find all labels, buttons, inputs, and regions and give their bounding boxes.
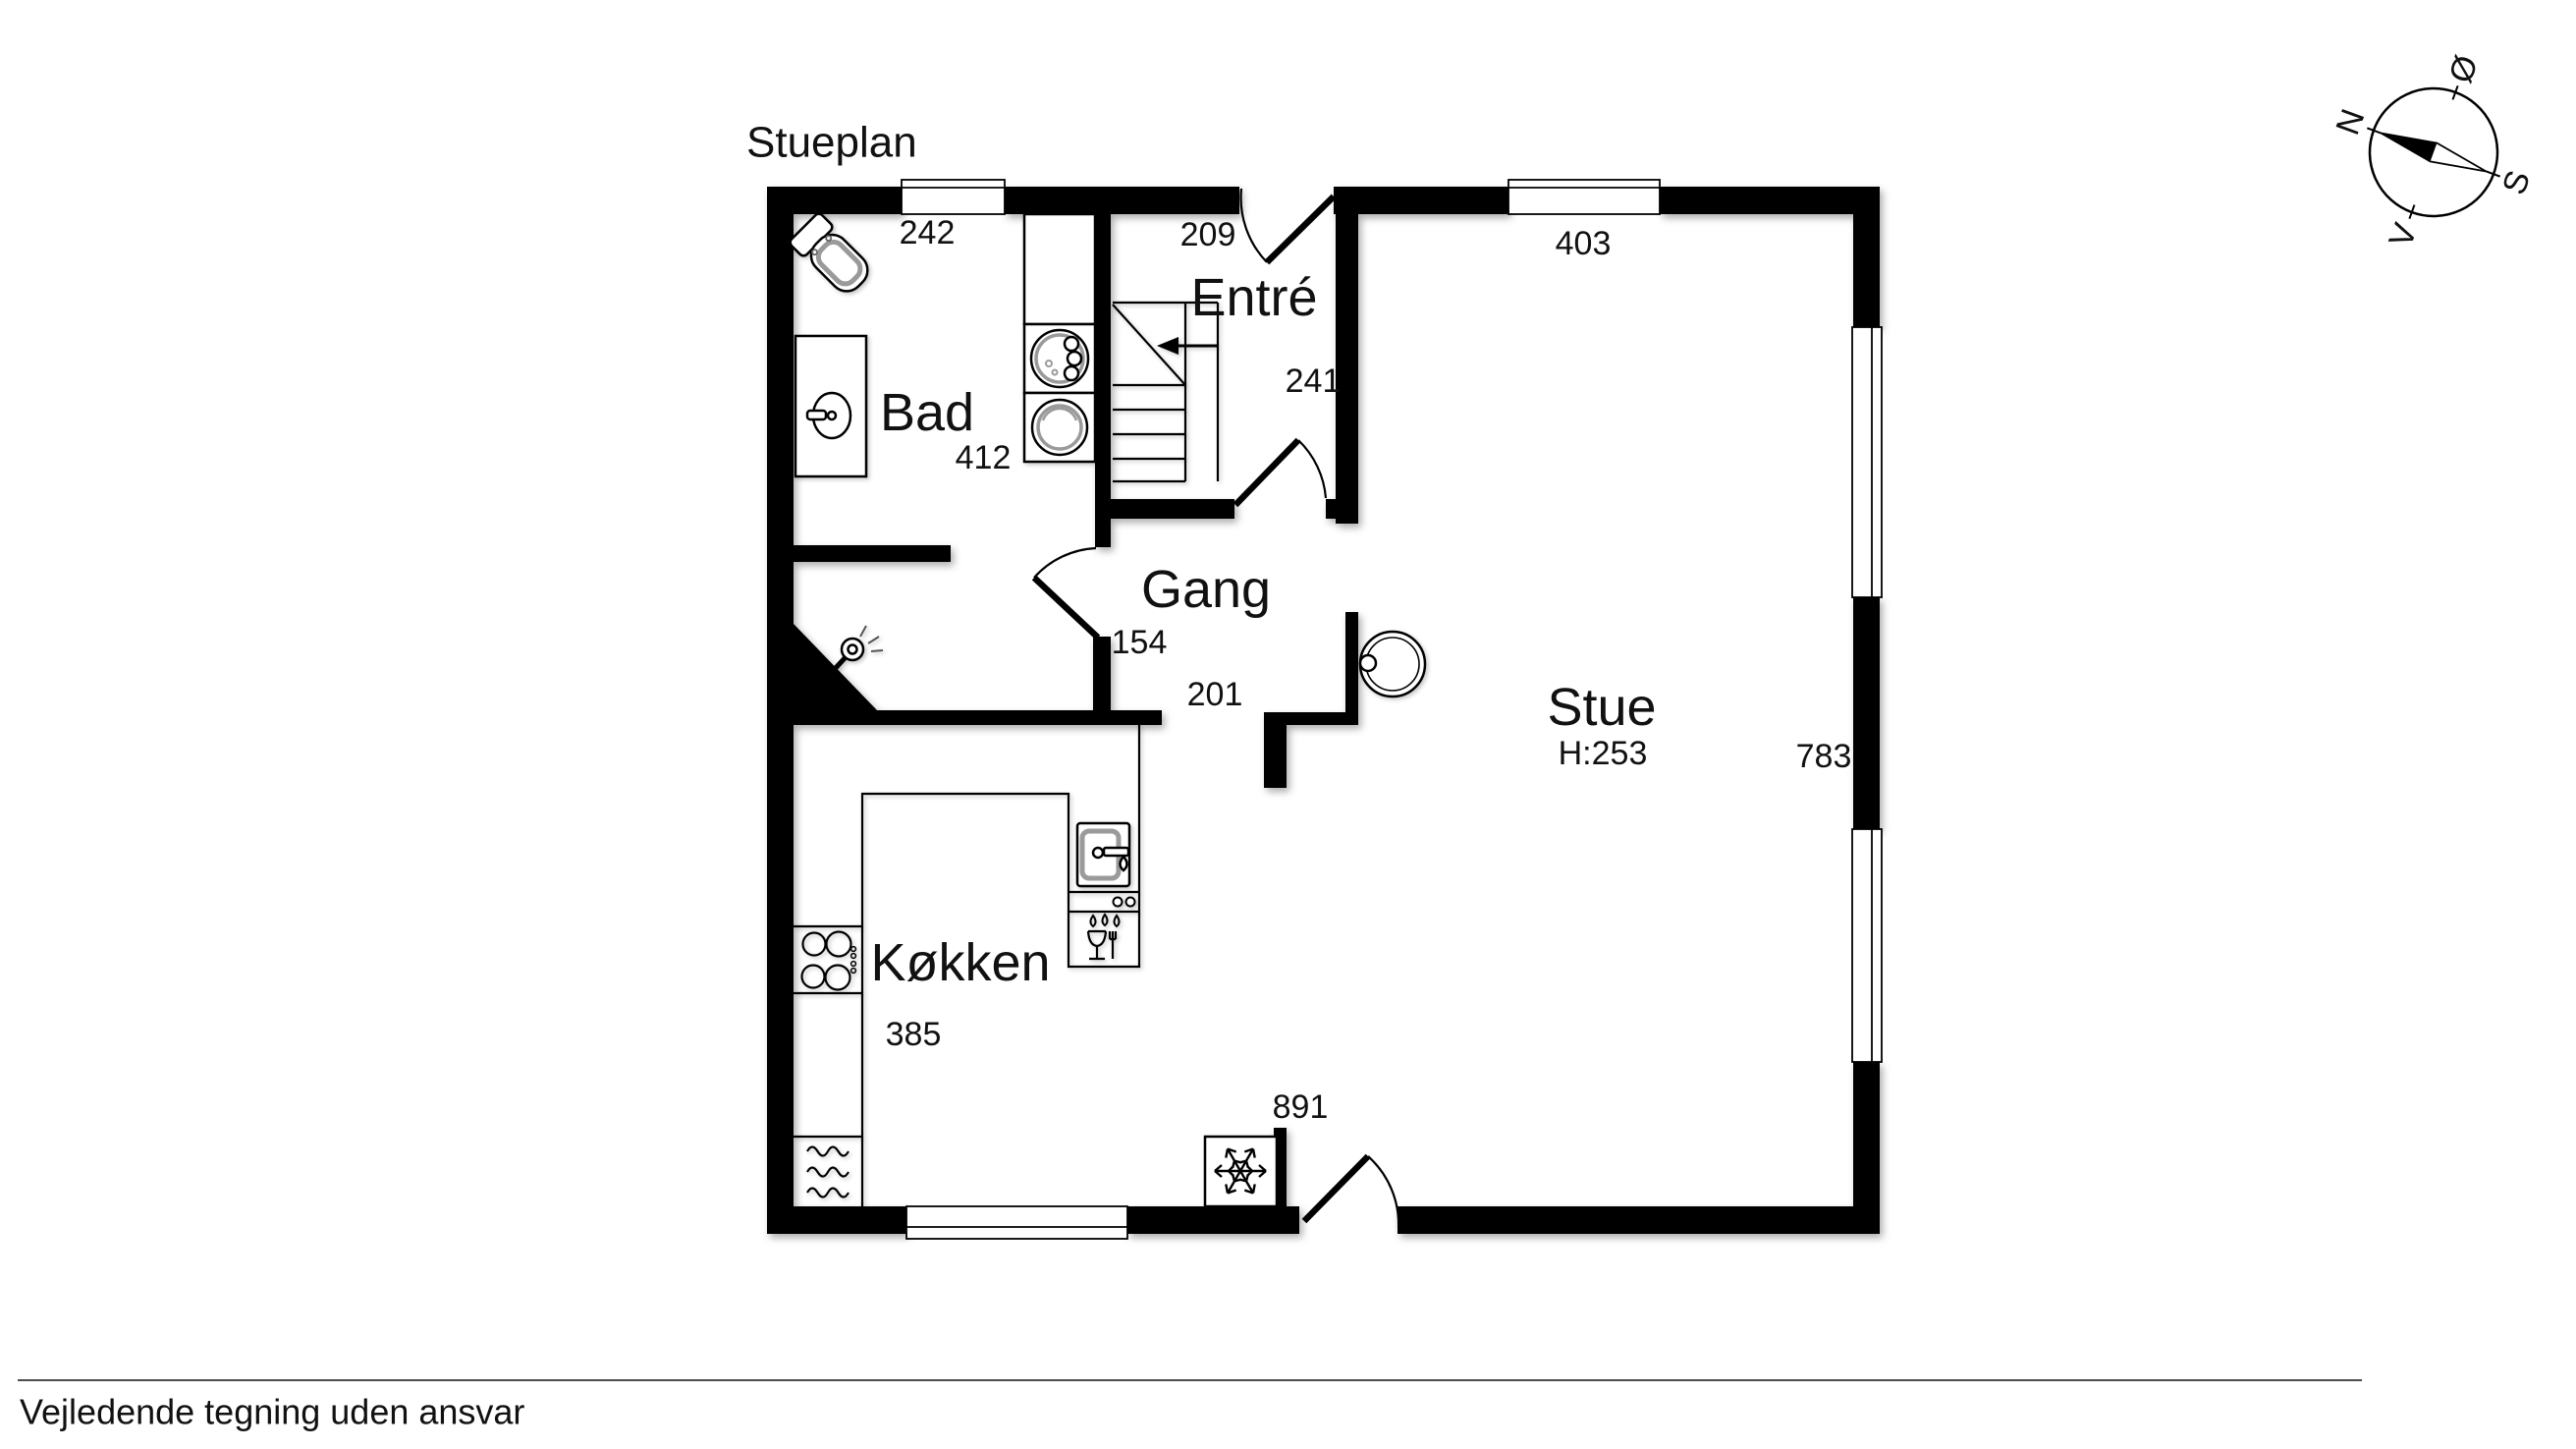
cooktop-icon [802, 932, 856, 990]
stairs-direction-arrow-icon [1157, 337, 1218, 355]
wall-gang-top [1107, 499, 1234, 519]
measurement-stue-window: 403 [1556, 225, 1612, 262]
freezer-icon [1205, 1137, 1277, 1206]
room-label-stue: Stue [1547, 678, 1656, 737]
oven-icon [807, 1147, 849, 1198]
window-stue-right-upper [1852, 327, 1882, 597]
room-label-bad: Bad [880, 383, 974, 442]
labels: Stueplan Bad 412 242 154 Entré 241 209 G… [746, 119, 1851, 1127]
compass-rose-icon: N Ø S V [2299, 21, 2569, 283]
measurement-stue-depth: 783 [1796, 738, 1852, 775]
measurement-bad-door: 154 [1112, 624, 1168, 661]
measurement-kokken-width: 385 [886, 1016, 942, 1053]
floor-plan-canvas: Stueplan Bad 412 242 154 Entré 241 209 G… [0, 0, 2576, 1449]
wall-gang-stue [1345, 612, 1358, 725]
tumble-dryer-icon [1024, 393, 1095, 462]
door-entre-gang [1235, 440, 1326, 505]
washbasin-icon [795, 336, 866, 476]
window-stue-top [1508, 180, 1660, 214]
kitchen-sink-icon [1077, 823, 1129, 886]
compass-west: V [2382, 218, 2425, 252]
wall-gang-bottom [1264, 712, 1358, 725]
room-label-entre: Entré [1190, 268, 1317, 327]
measurement-entre-width: 241 [1286, 362, 1342, 400]
footer: Vejledende tegning uden ansvar [18, 1380, 2362, 1432]
measurement-gang-opening: 201 [1187, 676, 1243, 713]
measurement-entre-door: 209 [1180, 216, 1236, 253]
appliance-column [1024, 214, 1095, 462]
room-label-kokken: Køkken [870, 933, 1050, 992]
room-label-gang: Gang [1141, 560, 1271, 619]
wood-stove-icon [1360, 632, 1425, 697]
wall-bad-partition [794, 545, 951, 562]
compass-north: N [2329, 104, 2372, 139]
window-bad-top [902, 180, 1005, 214]
staircase [1113, 303, 1218, 481]
door-entrance [1241, 189, 1334, 262]
toilet-icon [789, 212, 876, 300]
lamp-icon [834, 626, 883, 670]
window-stue-right-lower [1852, 829, 1882, 1062]
dishwasher-icon [1069, 892, 1139, 959]
disclaimer-text: Vejledende tegning uden ansvar [20, 1392, 524, 1432]
measurement-bad-window: 242 [900, 214, 956, 251]
measurement-stue-door: 891 [1273, 1088, 1329, 1126]
wall-bad-stairs [1095, 214, 1111, 547]
compass-east: Ø [2441, 51, 2486, 88]
walls [767, 187, 1880, 1234]
measurement-bad-width: 412 [956, 439, 1012, 476]
page-title: Stueplan [746, 119, 917, 167]
washing-machine-icon [1024, 324, 1095, 393]
door-stue-bottom [1304, 1156, 1398, 1228]
window-kokken-bottom [906, 1206, 1127, 1239]
compass-south: S [2495, 166, 2538, 199]
stue-ceiling-height: H:253 [1559, 735, 1648, 772]
door-bad [1034, 548, 1098, 638]
tall-cabinet-icon [1024, 214, 1095, 324]
